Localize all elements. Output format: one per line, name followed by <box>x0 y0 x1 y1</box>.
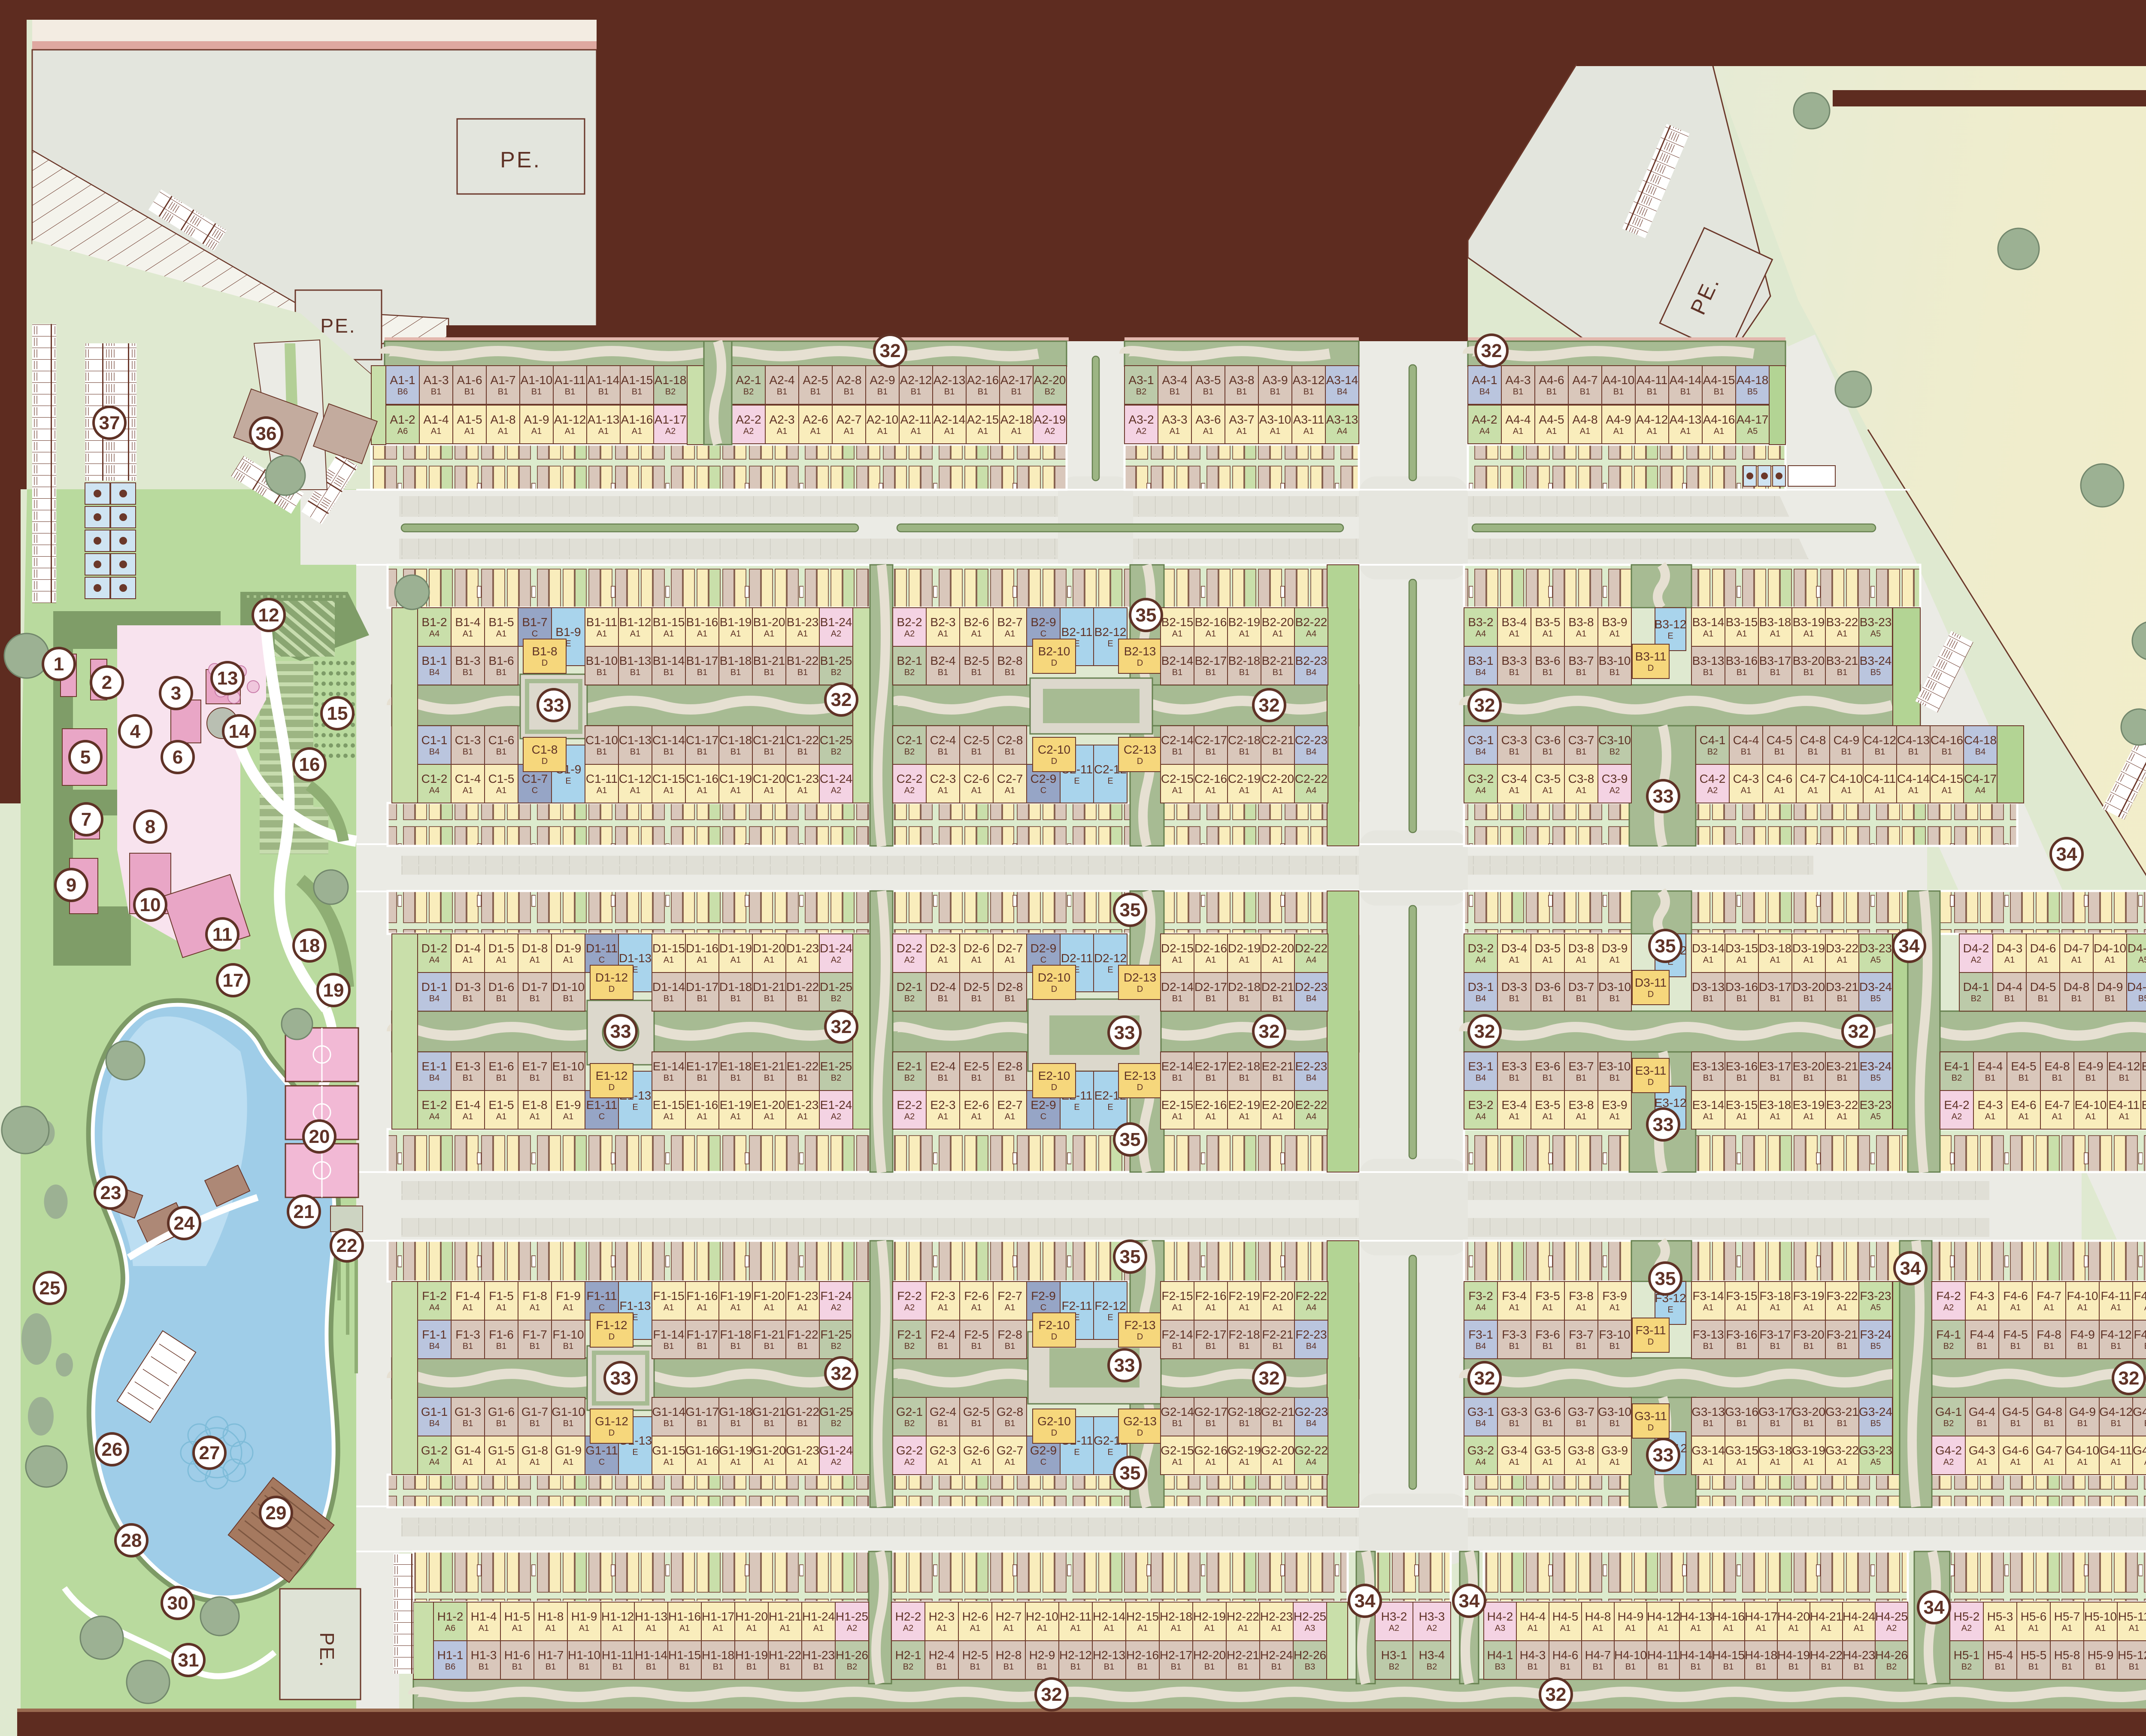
svg-text:21: 21 <box>294 1201 315 1222</box>
svg-text:32: 32 <box>831 1016 852 1037</box>
svg-text:32: 32 <box>1848 1021 1869 1042</box>
svg-text:19: 19 <box>323 980 344 1001</box>
svg-text:34: 34 <box>1900 1258 1921 1279</box>
svg-text:32: 32 <box>1259 1021 1280 1042</box>
svg-text:33: 33 <box>543 695 564 716</box>
svg-text:23: 23 <box>100 1182 121 1203</box>
svg-text:34: 34 <box>1899 936 1920 957</box>
svg-text:32: 32 <box>1041 1684 1062 1705</box>
svg-text:27: 27 <box>199 1442 220 1463</box>
svg-text:32: 32 <box>1481 340 1502 361</box>
svg-text:9: 9 <box>66 875 76 896</box>
svg-text:1: 1 <box>54 654 64 675</box>
svg-text:33: 33 <box>1114 1355 1135 1376</box>
svg-text:35: 35 <box>1120 1463 1141 1484</box>
svg-text:26: 26 <box>102 1439 123 1460</box>
svg-text:13: 13 <box>217 668 238 689</box>
svg-text:25: 25 <box>39 1278 61 1299</box>
svg-text:10: 10 <box>140 894 161 915</box>
svg-text:32: 32 <box>2119 1368 2140 1389</box>
svg-text:31: 31 <box>178 1650 199 1671</box>
svg-text:28: 28 <box>121 1530 142 1551</box>
svg-text:32: 32 <box>1259 695 1280 716</box>
svg-text:32: 32 <box>1546 1684 1567 1705</box>
svg-text:33: 33 <box>1653 1114 1674 1135</box>
svg-text:12: 12 <box>258 605 279 626</box>
svg-text:3: 3 <box>171 683 181 704</box>
svg-text:32: 32 <box>1259 1368 1280 1389</box>
svg-text:7: 7 <box>81 809 91 830</box>
svg-text:32: 32 <box>1474 1021 1495 1042</box>
svg-text:11: 11 <box>212 924 233 945</box>
svg-text:2: 2 <box>102 672 112 693</box>
svg-text:34: 34 <box>1355 1591 1376 1612</box>
svg-text:35: 35 <box>1655 1268 1676 1289</box>
svg-text:34: 34 <box>1924 1597 1945 1618</box>
svg-text:33: 33 <box>610 1021 631 1042</box>
svg-text:32: 32 <box>1474 1368 1495 1389</box>
svg-text:14: 14 <box>229 721 250 742</box>
svg-text:35: 35 <box>1136 605 1157 626</box>
svg-text:34: 34 <box>2056 844 2077 865</box>
svg-text:20: 20 <box>309 1126 330 1147</box>
svg-text:18: 18 <box>299 935 320 956</box>
svg-text:16: 16 <box>299 754 320 775</box>
svg-text:35: 35 <box>1120 1246 1141 1267</box>
svg-text:24: 24 <box>174 1213 195 1234</box>
svg-text:33: 33 <box>1114 1022 1135 1043</box>
svg-text:22: 22 <box>336 1235 358 1256</box>
svg-text:PE.: PE. <box>320 315 356 337</box>
svg-text:PE.: PE. <box>500 148 541 173</box>
svg-text:4: 4 <box>130 721 141 742</box>
svg-text:6: 6 <box>173 747 183 768</box>
svg-text:15: 15 <box>327 703 348 724</box>
svg-text:35: 35 <box>1120 900 1141 921</box>
svg-text:32: 32 <box>831 1363 852 1384</box>
svg-text:PE.: PE. <box>316 1632 338 1668</box>
svg-text:32: 32 <box>880 340 901 361</box>
svg-text:32: 32 <box>831 689 852 710</box>
svg-text:32: 32 <box>1474 695 1495 716</box>
svg-text:33: 33 <box>610 1368 631 1389</box>
svg-text:35: 35 <box>1120 1129 1141 1150</box>
svg-text:30: 30 <box>167 1593 188 1614</box>
svg-text:29: 29 <box>266 1503 287 1524</box>
svg-text:5: 5 <box>80 747 91 768</box>
svg-text:34: 34 <box>1459 1591 1480 1612</box>
svg-text:33: 33 <box>1653 1445 1674 1466</box>
svg-text:33: 33 <box>1653 786 1674 807</box>
svg-text:17: 17 <box>223 970 244 991</box>
svg-text:8: 8 <box>145 816 155 837</box>
svg-text:37: 37 <box>99 412 120 433</box>
svg-text:36: 36 <box>256 423 277 444</box>
svg-text:35: 35 <box>1655 936 1676 957</box>
